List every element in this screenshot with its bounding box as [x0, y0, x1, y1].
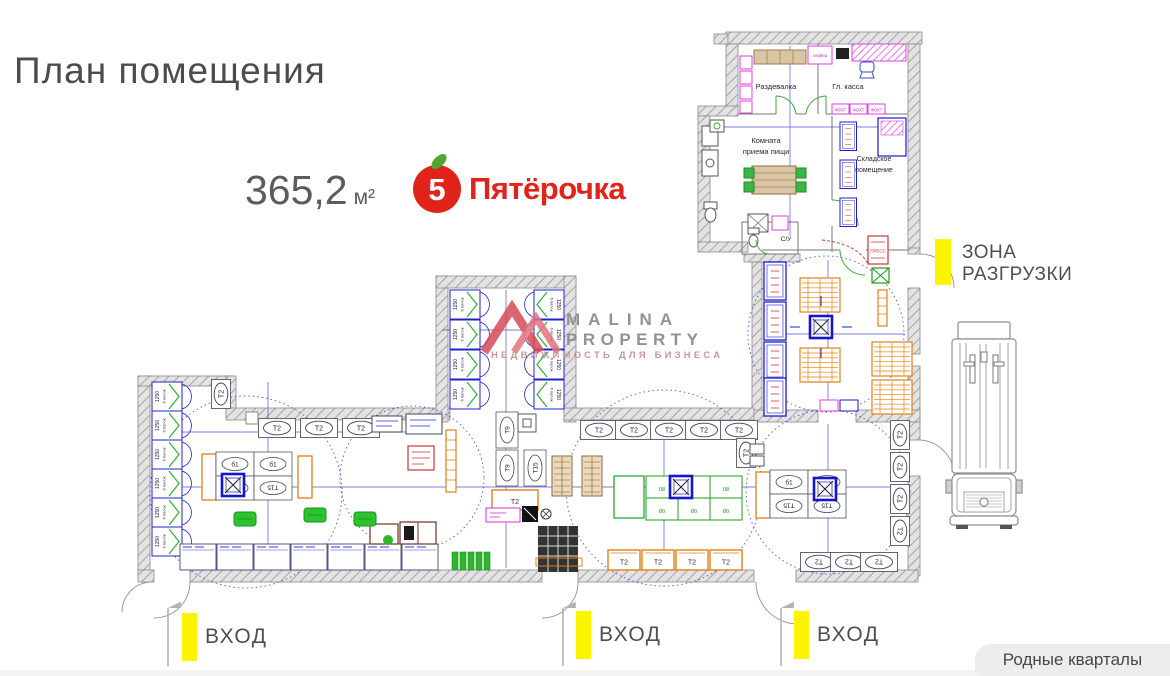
unloading-zone-line-1: ЗОНА — [962, 242, 1072, 264]
cashbox-row: ФОХТ ФОХТ ФОХТ — [832, 104, 885, 114]
island-3-green: 08 08 80 80 80 — [614, 476, 742, 520]
area-number: 365,2 — [245, 167, 348, 213]
truck-top-view — [946, 322, 1022, 529]
cashbox-label: ФОХТ — [853, 108, 865, 113]
area-value: 365,2м² — [245, 167, 375, 214]
floor-plan-slide: { "header": { "title": "План помещения",… — [0, 0, 1170, 676]
entrance-3-label: ВХОД — [817, 623, 880, 647]
watermark-tagline: НЕДВИЖИМОСТЬ ДЛЯ БИЗНЕСА — [491, 350, 723, 361]
footer-badge: Родные кварталы — [975, 644, 1170, 676]
t2-label: Т2 — [511, 499, 519, 506]
island-a-label: 08 — [659, 487, 665, 493]
island-b-label: 80 — [659, 509, 665, 515]
logo-digit: 5 — [428, 172, 445, 208]
wc-label: С/У — [781, 236, 793, 243]
unloading-zone-highlight — [935, 239, 951, 285]
area-unit: м² — [354, 186, 375, 209]
pyaterochka-logo-icon: 5 — [413, 165, 461, 213]
storage-room-label-1: Складское — [857, 156, 892, 163]
island-4 — [756, 470, 846, 518]
unloading-storage-area — [764, 254, 954, 416]
island-b-label: 80 — [691, 509, 697, 515]
storage-room-label-2: помещение — [855, 167, 893, 174]
entrance-3-highlight — [794, 611, 809, 659]
entrance-2-highlight — [576, 611, 591, 659]
entrance-2-label: ВХОД — [599, 623, 662, 647]
eating-room-label-1: Комната — [751, 136, 781, 145]
cashbox-label: ФОХТ — [835, 108, 847, 113]
watermark-line-1: MALINA — [566, 310, 680, 330]
left-wall-racks — [152, 382, 191, 556]
unloading-zone-label: ЗОНА РАЗГРУЗКИ — [962, 242, 1072, 286]
page-title: План помещения — [14, 50, 326, 92]
dressing-room-label: Раздевалка — [756, 82, 798, 91]
unloading-zone-line-2: РАЗГРУЗКИ — [962, 264, 1072, 286]
press-label: ПРЕСС — [870, 249, 885, 254]
watermark-line-2: PROPERTY — [566, 330, 704, 350]
eating-room-label-2: приема пищи — [743, 147, 790, 156]
island-1 — [202, 452, 312, 500]
cash-room-label: Гл. касса — [832, 82, 864, 91]
brand-name: Пятёрочка — [469, 171, 625, 207]
main-cash-room: сервер Гл. касса ФОХТ ФОХТ ФОХТ — [808, 44, 906, 114]
island-b-label: 80 — [723, 509, 729, 515]
entrance-1-highlight — [182, 613, 197, 661]
checkout-area — [234, 508, 436, 545]
cashbox-label: ФОХТ — [871, 108, 883, 113]
server-label: сервер — [813, 53, 828, 58]
eating-room: Комната приема пищи — [702, 120, 858, 232]
entrance-1-label: ВХОД — [205, 625, 268, 649]
island-a-label: 08 — [723, 487, 729, 493]
